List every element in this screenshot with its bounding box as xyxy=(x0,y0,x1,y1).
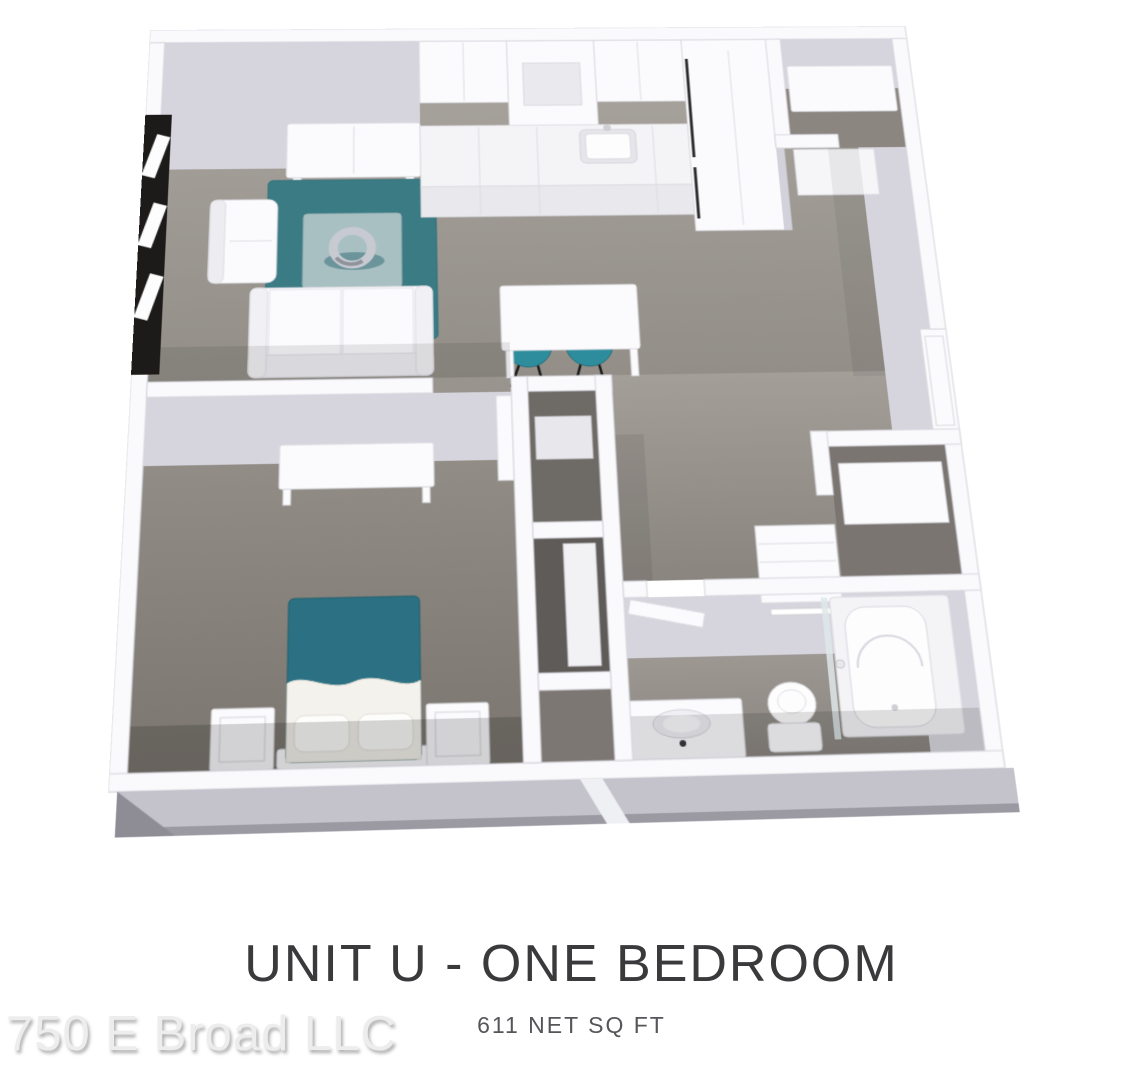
kitchen-counter xyxy=(420,124,695,217)
closet-divider-wall xyxy=(533,521,604,538)
armchair xyxy=(208,200,278,284)
bathroom-north-wall xyxy=(623,581,648,598)
bedroom-door-opening xyxy=(433,377,512,393)
entry-closet-shelf xyxy=(787,66,898,112)
coffee-table xyxy=(302,213,402,289)
closet-door-panel xyxy=(563,543,601,666)
bath-closet xyxy=(828,444,962,576)
kitchen-sink xyxy=(579,124,637,163)
shower-head xyxy=(836,660,845,669)
closet-shelf xyxy=(535,416,593,459)
entry-closet-south-wall xyxy=(775,134,840,148)
page-canvas: 750 E Broad LLC UNIT U - ONE BEDROOM 611… xyxy=(0,0,1143,1080)
floor-plan-3d xyxy=(105,26,1025,847)
kitchen xyxy=(419,39,792,233)
bath-closet-shelf xyxy=(838,462,949,525)
page-title: UNIT U - ONE BEDROOM xyxy=(0,934,1143,994)
bath-closet-north-wall xyxy=(810,429,961,447)
net-area-label: 611 NET SQ FT xyxy=(0,1012,1143,1039)
closet-south-wall xyxy=(538,672,611,691)
